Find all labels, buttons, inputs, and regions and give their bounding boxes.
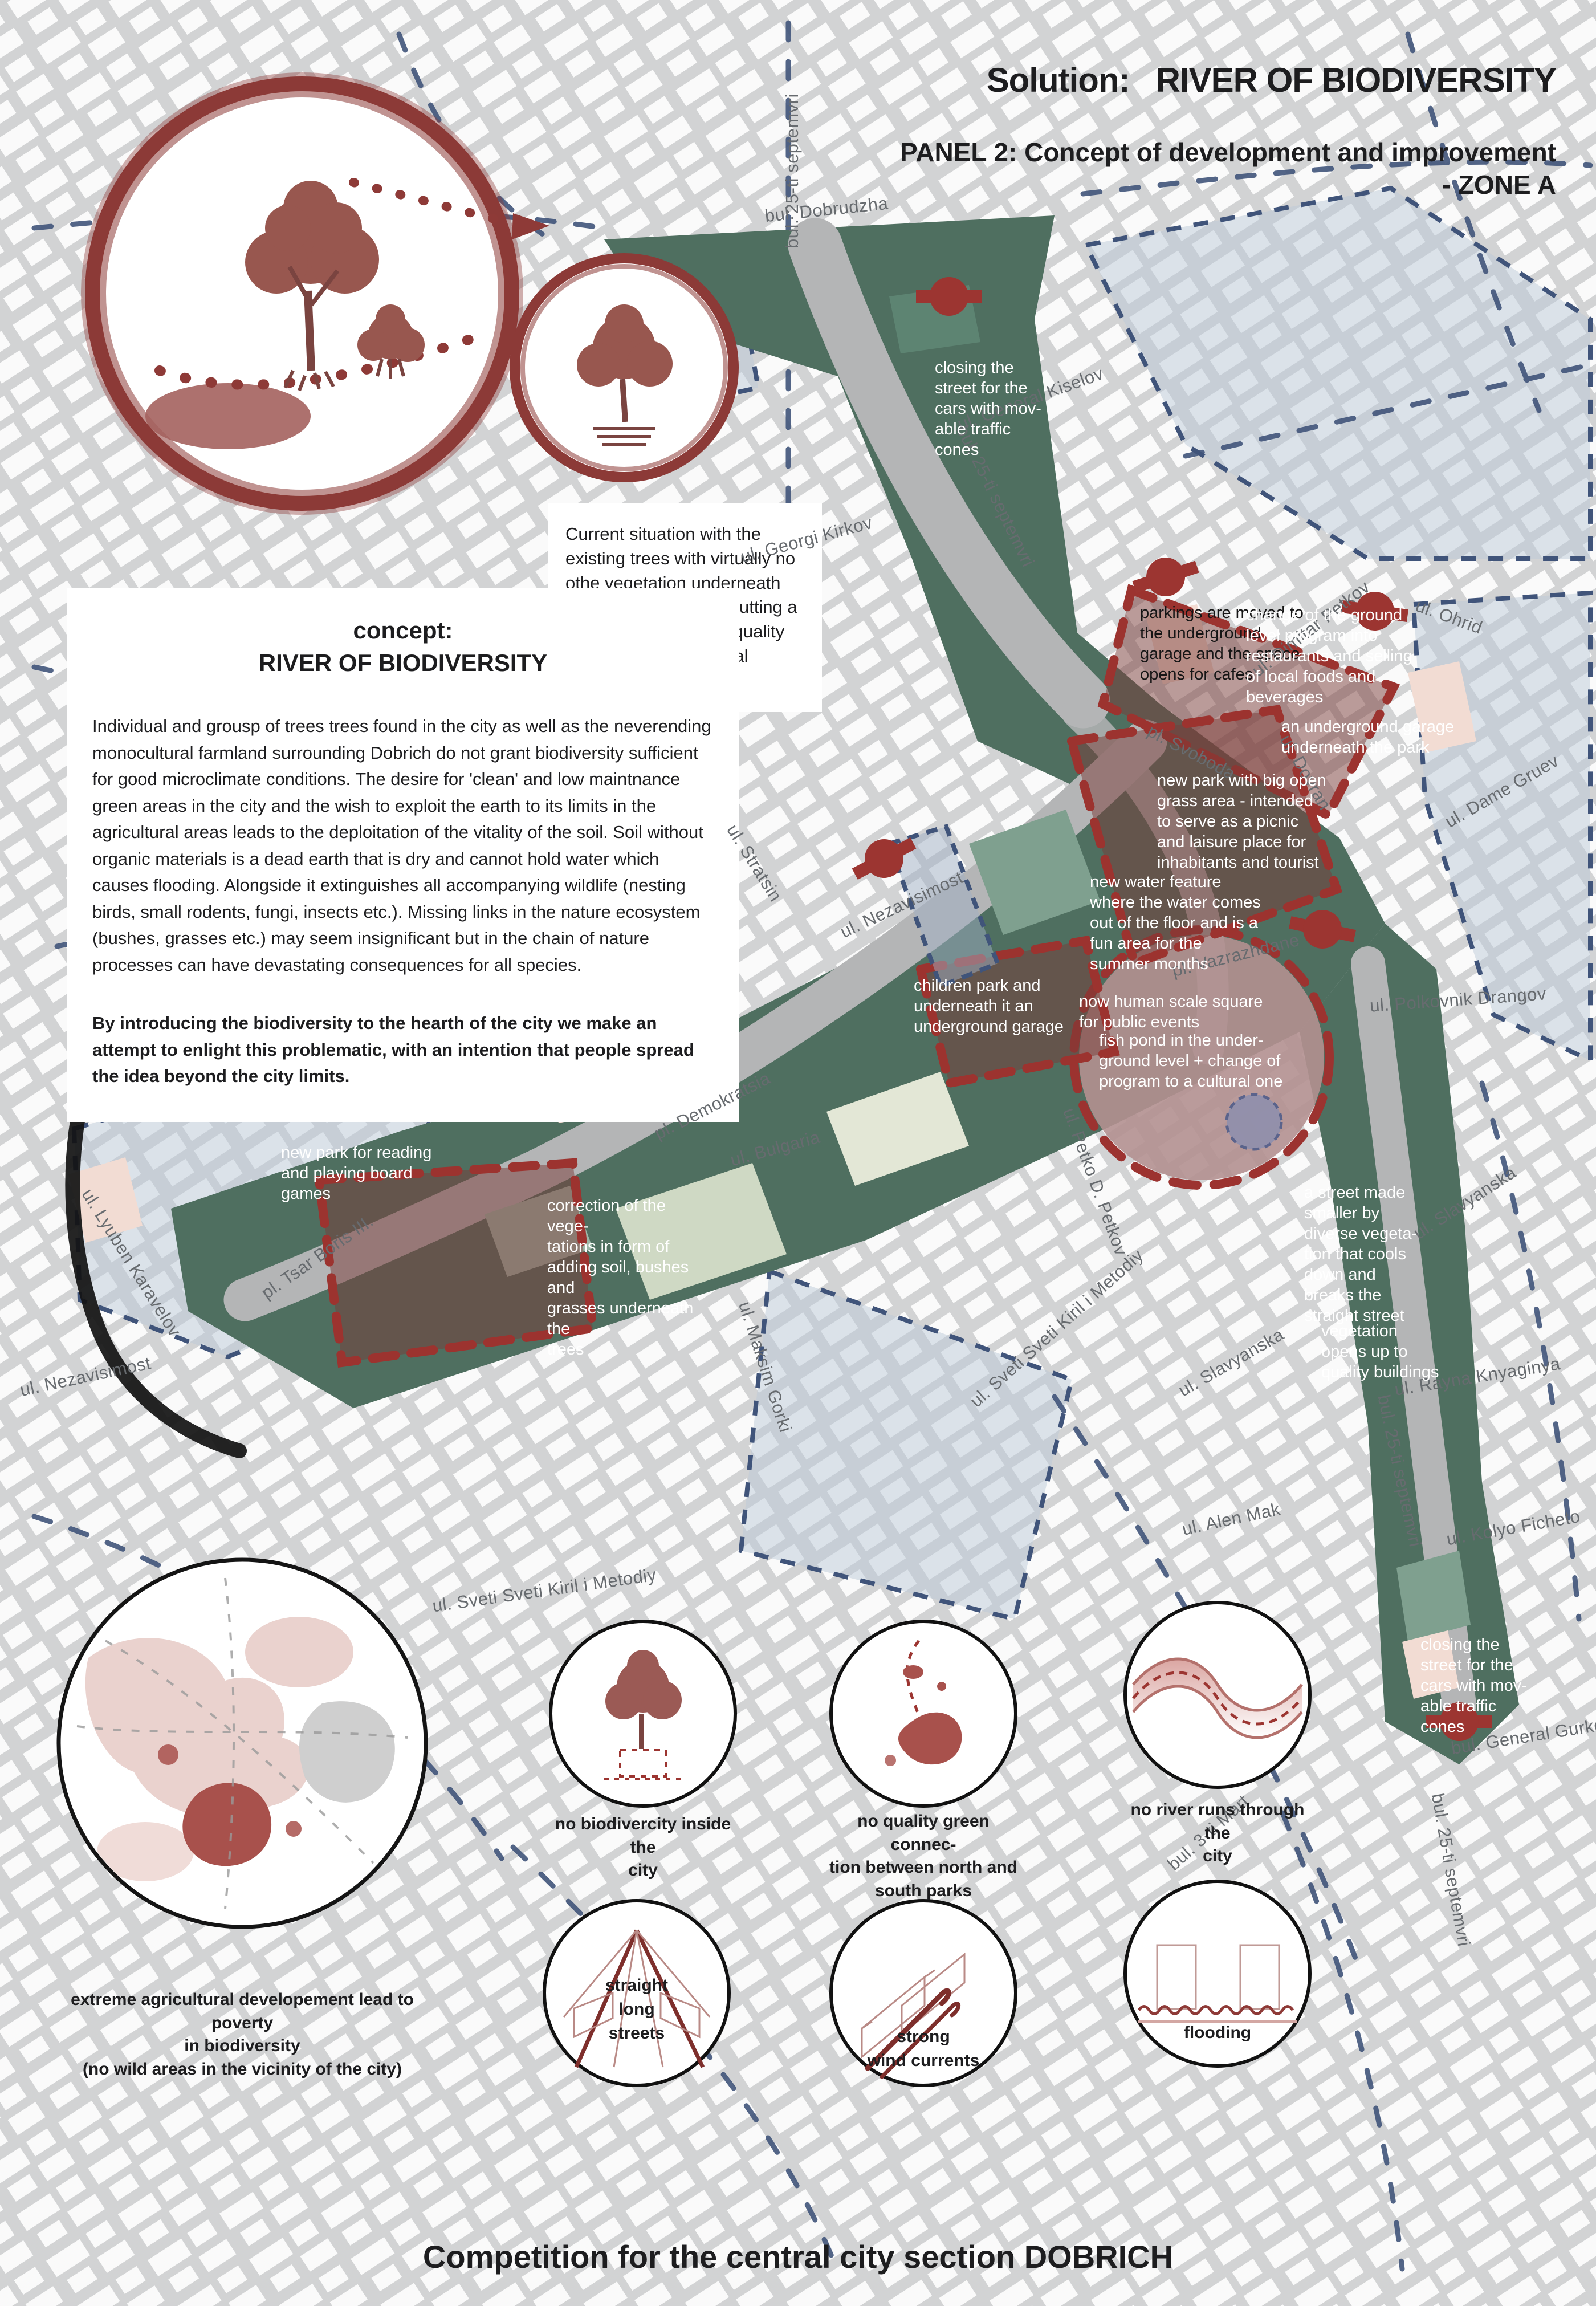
note-underground-garage: an underground garage underneath the par… bbox=[1281, 717, 1458, 758]
trail-wedge bbox=[512, 213, 549, 239]
agriculture-problem-circle bbox=[54, 1555, 430, 1931]
header: Solution:RIVER OF BIODIVERSITY PANEL 2: … bbox=[809, 62, 1556, 199]
solution-title: RIVER OF BIODIVERSITY bbox=[1156, 61, 1556, 99]
caption-no-connection: no quality green connec- tion between no… bbox=[826, 1810, 1020, 1902]
soil-blob bbox=[145, 383, 311, 449]
caption-no-river: no river runs through the city bbox=[1121, 1799, 1314, 1868]
note-vegetation-correction: correction of the vege- tations in form … bbox=[547, 1196, 707, 1360]
note-closing-street-bottom: closing the street for the cars with mov… bbox=[1420, 1635, 1552, 1738]
note-children-park: children park and underneath it an under… bbox=[914, 976, 1073, 1038]
caption-agriculture: extreme agricultural developement lead t… bbox=[43, 1988, 442, 2081]
caption-no-biodiversity: no biodivercity inside the city bbox=[546, 1813, 740, 1882]
concept-inset bbox=[57, 51, 769, 524]
concept-body: Individual and grousp of trees trees fou… bbox=[92, 713, 714, 978]
zone-subtitle: - ZONE A bbox=[809, 170, 1556, 200]
fish-pond-circle bbox=[1227, 1095, 1281, 1149]
street-label: bul. 25-ti septemvri bbox=[782, 93, 803, 249]
footer-title: Competition for the central city section… bbox=[0, 2238, 1596, 2275]
concept-heading: concept: RIVER OF BIODIVERSITY bbox=[92, 615, 714, 679]
no-biodiversity-circle bbox=[547, 1618, 739, 1809]
note-fish-pond: fish pond in the under- ground level + c… bbox=[1099, 1031, 1287, 1092]
no-green-connection-circle bbox=[828, 1618, 1019, 1809]
concept-emphasis: By introducing the biodiversity to the h… bbox=[92, 1010, 714, 1090]
note-street-smaller: a street made smaller by diverse vegeta-… bbox=[1304, 1183, 1435, 1327]
note-closing-street-top: closing the street for the cars with mov… bbox=[935, 358, 1072, 461]
no-river-circle bbox=[1122, 1599, 1313, 1791]
label-straight-streets: straight long streets bbox=[580, 1974, 694, 2045]
solution-label: Solution: bbox=[987, 61, 1130, 99]
concept-box: concept: RIVER OF BIODIVERSITY Individua… bbox=[67, 588, 739, 1122]
page-title: Solution:RIVER OF BIODIVERSITY bbox=[809, 62, 1556, 99]
label-flooding: flooding bbox=[1158, 2021, 1277, 2045]
note-human-scale-square: now human scale square for public events bbox=[1079, 992, 1267, 1033]
note-water-feature: new water feature where the water comes … bbox=[1090, 872, 1267, 975]
note-new-park-grass: new park with big open grass area - inte… bbox=[1157, 771, 1334, 873]
note-ground-level-program: change of the ground level program into … bbox=[1246, 605, 1417, 708]
label-wind-currents: strong wind currents bbox=[849, 2025, 997, 2073]
note-reading-park: new park for reading and playing board g… bbox=[281, 1143, 435, 1205]
note-vegetation-opens: vegetation opens up to quality buildings bbox=[1321, 1321, 1464, 1383]
competition-panel-poster: Solution:RIVER OF BIODIVERSITY PANEL 2: … bbox=[0, 0, 1596, 2306]
panel-subtitle: PANEL 2: Concept of development and impr… bbox=[809, 138, 1556, 167]
